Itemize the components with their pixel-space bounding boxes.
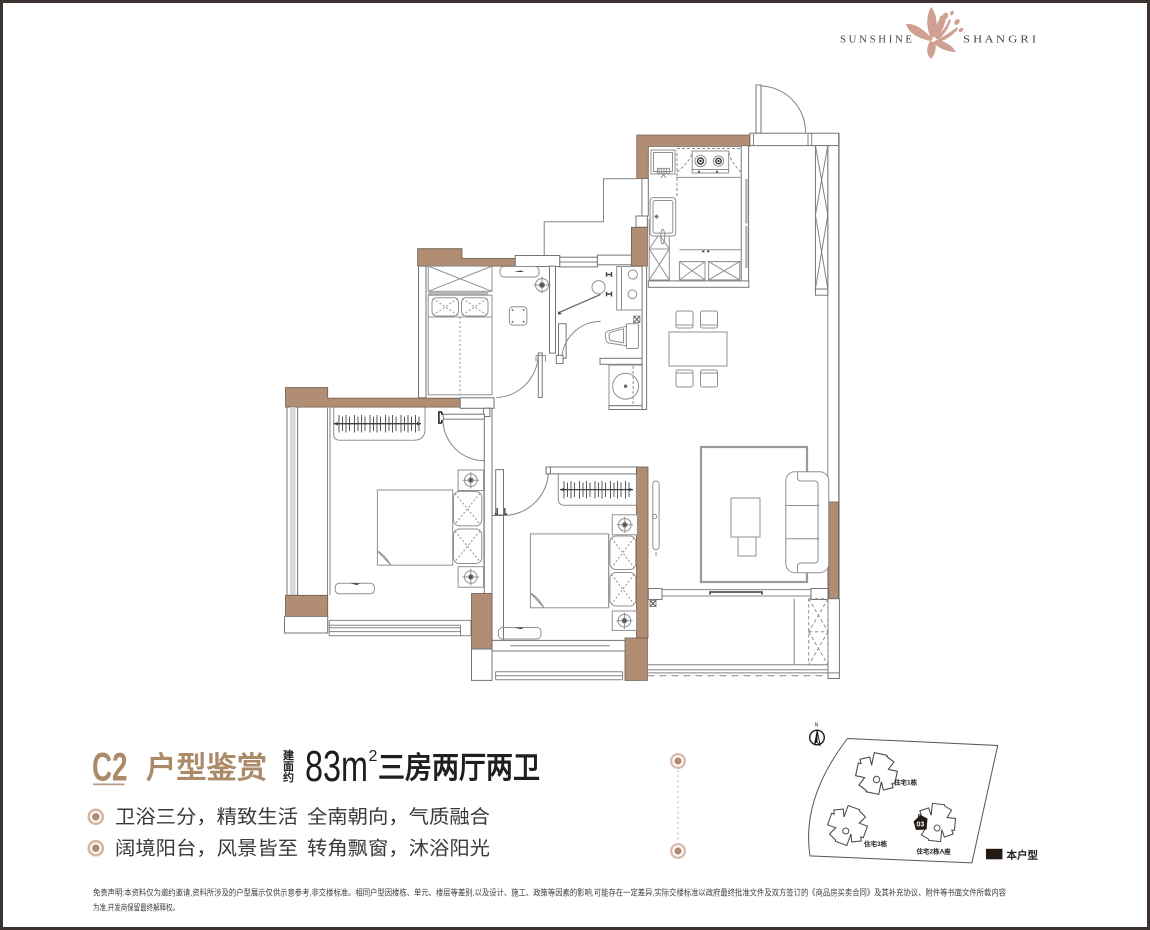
svg-text:住宅1栋: 住宅1栋 bbox=[894, 778, 918, 787]
svg-text:约: 约 bbox=[283, 770, 294, 784]
svg-text:83m: 83m bbox=[305, 742, 368, 791]
svg-text:三房两厅两卫: 三房两厅两卫 bbox=[378, 752, 540, 785]
svg-text:S H A N G R I: S H A N G R I bbox=[963, 34, 1036, 46]
svg-text:2: 2 bbox=[369, 748, 378, 765]
svg-text:本户型: 本户型 bbox=[1007, 849, 1039, 862]
svg-text:建: 建 bbox=[283, 748, 295, 762]
svg-text:住宅3栋: 住宅3栋 bbox=[864, 839, 888, 848]
svg-text:卫浴三分，精致生活: 卫浴三分，精致生活 bbox=[115, 806, 298, 828]
svg-text:免责声明:本资料仅为邀约邀请,资料所涉及的户型展示仅供示意参: 免责声明:本资料仅为邀约邀请,资料所涉及的户型展示仅供示意参考,非交楼标准。相同… bbox=[93, 888, 1006, 898]
svg-text:转角飘窗，沐浴阳光: 转角飘窗，沐浴阳光 bbox=[307, 838, 490, 860]
svg-text:03: 03 bbox=[917, 822, 925, 829]
svg-text:为准,开发商保留最终解释权。: 为准,开发商保留最终解释权。 bbox=[93, 903, 179, 913]
svg-text:N: N bbox=[815, 723, 819, 729]
svg-text:C2: C2 bbox=[92, 746, 128, 790]
svg-text:户型鉴赏: 户型鉴赏 bbox=[146, 752, 267, 785]
svg-text:住宅2栋A座: 住宅2栋A座 bbox=[917, 847, 952, 856]
svg-text:阔境阳台，风景皆至: 阔境阳台，风景皆至 bbox=[115, 838, 298, 860]
svg-text:全南朝向，气质融合: 全南朝向，气质融合 bbox=[307, 806, 490, 828]
svg-text:S U N S H I N E: S U N S H I N E bbox=[840, 34, 912, 46]
